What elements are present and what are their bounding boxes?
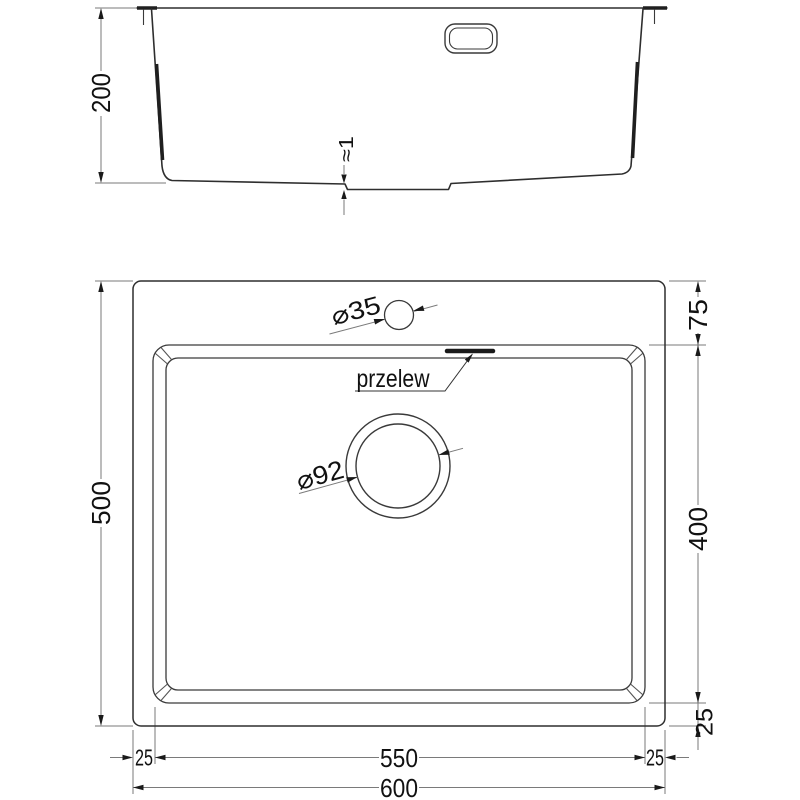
arrowhead-icon [98, 8, 103, 19]
arrowhead-icon [413, 306, 424, 312]
dim-bowl-depth-label: 400 [683, 507, 713, 551]
dim-overall-depth: 500 [86, 281, 133, 726]
bowl-rim-outer [153, 345, 645, 703]
arrowhead-icon [341, 175, 346, 184]
arrowhead-icon [695, 692, 700, 703]
arrowhead-icon [98, 715, 103, 726]
bowl-wall-thick-segments [157, 62, 638, 160]
dim-bowl-width-label: 550 [380, 743, 418, 773]
overflow-hole-inner [450, 28, 493, 49]
dim-depth: 200 [86, 8, 166, 183]
plan-view: 500 75 400 25 25 550 25 [86, 281, 719, 800]
arrowhead-icon [695, 334, 700, 345]
dim-depth-label: 200 [86, 73, 116, 113]
technical-drawing-canvas: 200 ≈1 500 [0, 0, 800, 800]
sink-dimension-drawing: 200 ≈1 500 [0, 0, 800, 800]
overflow-label: przelew [357, 365, 431, 393]
bowl-rim-inner [166, 358, 632, 690]
section-view: 200 ≈1 [86, 8, 667, 215]
arrowhead-icon [123, 755, 134, 760]
arrowhead-icon [695, 345, 700, 356]
drain-group: ⌀92 [293, 414, 463, 518]
overflow-hole-section [445, 24, 497, 53]
dim-step-label: ≈1 [336, 136, 358, 162]
arrowhead-icon [346, 477, 357, 483]
rim-corner-chamfer-ticks [156, 348, 643, 701]
arrowhead-icon [341, 190, 346, 199]
dim-bottom-step: ≈1 [336, 136, 358, 215]
drain-hole [356, 424, 440, 508]
dim-overall-depth-label: 500 [86, 481, 116, 525]
arrowhead-icon [665, 755, 676, 760]
dim-tap-hole-label: ⌀35 [328, 291, 384, 331]
bowl-section-outline [152, 9, 644, 190]
dim-front-rim-label: 25 [692, 708, 719, 736]
dim-overall-width-label: 600 [380, 773, 418, 800]
overflow-group: przelew [355, 351, 493, 393]
rim-lip-ticks [144, 9, 655, 25]
arrowhead-icon [655, 785, 666, 790]
dim-drain-label: ⌀92 [293, 454, 347, 496]
arrowhead-icon [155, 755, 166, 760]
arrowhead-icon [635, 755, 646, 760]
tap-hole [385, 301, 414, 330]
sink-outer-edge [133, 281, 665, 726]
arrowhead-icon [98, 281, 103, 292]
dim-back-rim-label: 75 [683, 299, 713, 331]
dim-bottom-rows: 25 550 25 600 [110, 707, 689, 800]
arrowhead-icon [98, 172, 103, 183]
dim-left-rim-label: 25 [135, 745, 153, 771]
arrowhead-icon [439, 449, 450, 455]
arrowhead-icon [133, 785, 144, 790]
tap-hole-group: ⌀35 [328, 291, 437, 334]
dim-right-rim-label: 25 [646, 745, 664, 771]
dim-right-chain: 75 400 25 [649, 281, 719, 750]
arrowhead-icon [695, 281, 700, 292]
drain-outer-circle [346, 414, 450, 518]
